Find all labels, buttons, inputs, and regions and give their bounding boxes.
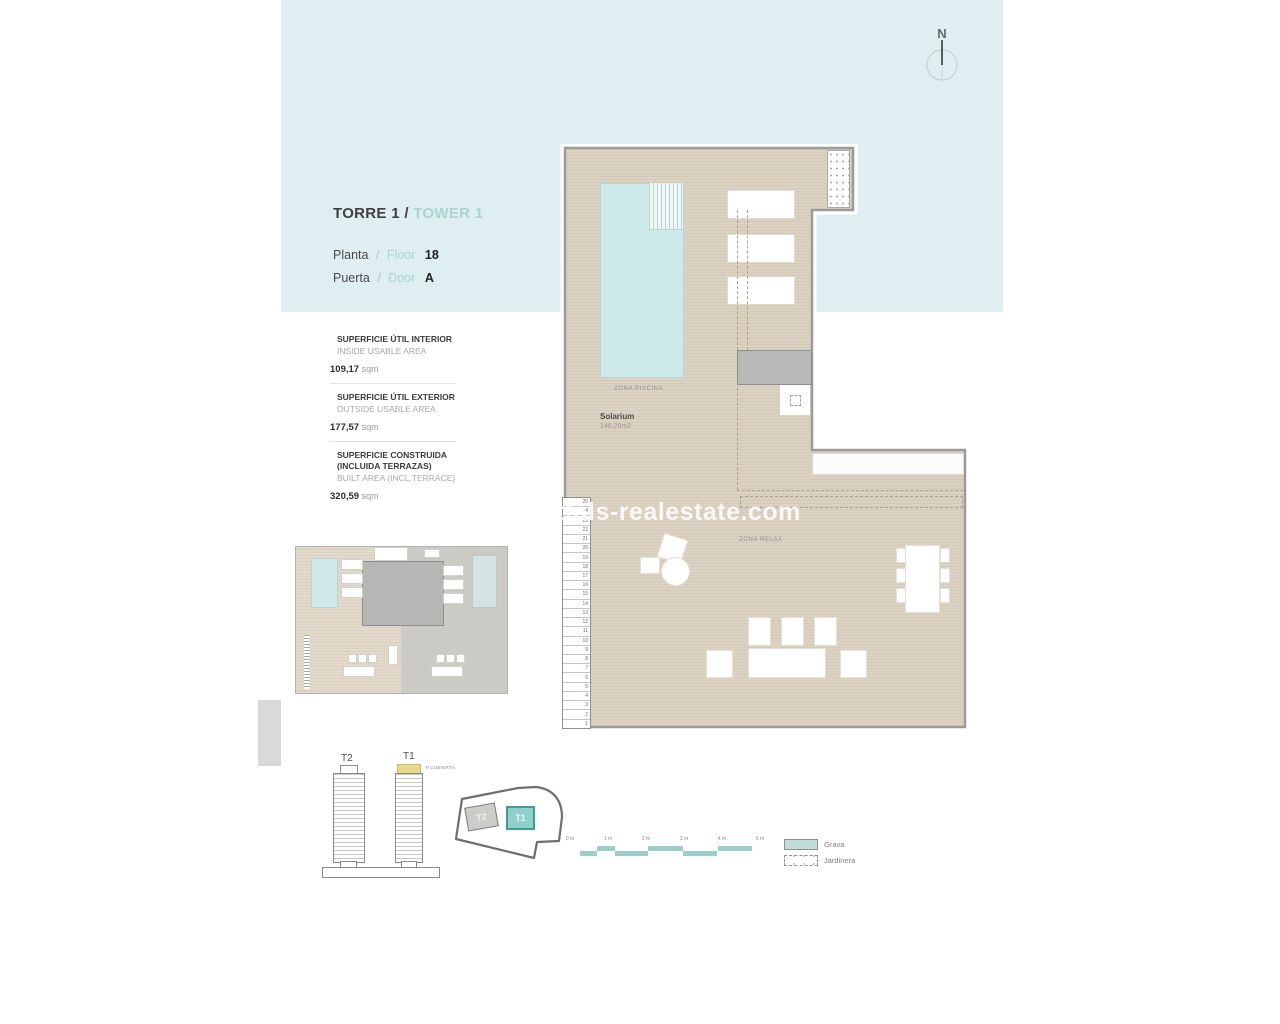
towers-podium bbox=[322, 867, 440, 878]
planter-strip-right bbox=[812, 453, 964, 475]
scale-bar: 0 m1 m2 m3 m4 m5 m bbox=[565, 836, 777, 862]
keyplan-notch bbox=[374, 547, 408, 561]
stair-tread: 2 bbox=[563, 710, 590, 719]
projection-line bbox=[747, 210, 748, 350]
scale-segment bbox=[718, 846, 752, 851]
keyplan-sunbed bbox=[341, 587, 363, 598]
stair-tread: 6 bbox=[563, 673, 590, 682]
scale-tick-label: 0 m bbox=[566, 836, 574, 842]
round-table bbox=[661, 557, 690, 586]
slash: / bbox=[373, 271, 384, 285]
area-unit: sqm bbox=[362, 364, 379, 374]
dining-chair bbox=[940, 568, 950, 583]
stair-tread: 16 bbox=[563, 581, 590, 590]
area-number: 177,57 bbox=[330, 422, 359, 433]
stair-tread: 12 bbox=[563, 618, 590, 627]
stair-tread: 13 bbox=[563, 609, 590, 618]
scale-segment bbox=[580, 851, 597, 856]
area-value: 109,17 sqm bbox=[330, 364, 456, 375]
slash: / bbox=[372, 248, 383, 262]
stair-tread: 4 bbox=[563, 692, 590, 701]
keyplan-pool-left bbox=[311, 558, 338, 608]
scale-segment bbox=[597, 846, 615, 851]
solarium-label: Solarium 146,28m2 bbox=[600, 412, 634, 430]
projection-line bbox=[737, 210, 738, 350]
stair-tread: 21 bbox=[563, 535, 590, 544]
legend-row: Grava bbox=[784, 838, 884, 850]
dining-chair bbox=[896, 588, 906, 603]
area-title-es2: (INCLUIDA TERRAZAS) bbox=[330, 461, 456, 472]
site-tower1-marker: T1 bbox=[506, 806, 535, 830]
keyplan-chair bbox=[446, 654, 455, 663]
stair-tread: 3 bbox=[563, 701, 590, 710]
dining-table bbox=[905, 545, 940, 613]
stair-tread: 19 bbox=[563, 553, 590, 562]
armchair bbox=[814, 617, 837, 646]
door-value: A bbox=[419, 271, 434, 285]
area-item-built: SUPERFICIE CONSTRUIDA (INCLUIDA TERRAZAS… bbox=[330, 450, 456, 502]
tower2-label: T2 bbox=[341, 753, 353, 764]
keyplan-chair bbox=[348, 654, 357, 663]
scale-tick-label: 2 m bbox=[642, 836, 650, 842]
stair-tread: 5 bbox=[563, 683, 590, 692]
floor-value: 18 bbox=[419, 248, 439, 262]
door-label-es: Puerta bbox=[333, 271, 370, 285]
tower1-label: T1 bbox=[403, 751, 415, 762]
solarium-area: 146,28m2 bbox=[600, 423, 634, 430]
roof-level-label: P.CUBIERTA bbox=[426, 765, 455, 770]
legend: GravaJardinera bbox=[784, 838, 884, 870]
scale-segment bbox=[648, 846, 683, 851]
relax-zone-label: ZONA RELAX bbox=[739, 537, 783, 543]
stair-tread: 10 bbox=[563, 637, 590, 646]
keyplan-pool-right bbox=[472, 555, 497, 608]
area-unit: sqm bbox=[362, 422, 379, 432]
keyplan-tab bbox=[424, 549, 440, 558]
area-title-es: SUPERFICIE ÚTIL EXTERIOR bbox=[330, 392, 456, 403]
title-separator: / bbox=[404, 205, 408, 222]
keyplan-sunbed bbox=[443, 565, 464, 576]
door-label-en: Door bbox=[388, 271, 415, 285]
stair-tread: 20 bbox=[563, 544, 590, 553]
area-value: 320,59 sqm bbox=[330, 491, 456, 502]
tower1-elevation bbox=[395, 773, 423, 863]
keyplan-sofa bbox=[431, 666, 463, 677]
gravel-swatch bbox=[784, 839, 818, 850]
keyplan-stairs bbox=[304, 635, 310, 689]
stair-tread: 14 bbox=[563, 600, 590, 609]
scale-tick-label: 4 m bbox=[718, 836, 726, 842]
area-unit: sqm bbox=[362, 491, 379, 501]
scale-tick-label: 1 m bbox=[604, 836, 612, 842]
area-number: 109,17 bbox=[330, 364, 359, 375]
area-title-es: SUPERFICIE ÚTIL INTERIOR bbox=[330, 334, 456, 345]
area-title-en: INSIDE USABLE AREA bbox=[330, 346, 456, 357]
page-edge-artifact bbox=[258, 700, 281, 766]
north-arrow: N bbox=[924, 26, 960, 84]
projection-line bbox=[737, 490, 963, 491]
watermark: ttals-realestate.com bbox=[556, 498, 801, 527]
legend-row: Jardinera bbox=[784, 854, 884, 866]
pool-zone-label: ZONA PISCINA bbox=[614, 386, 663, 392]
stair-tread: 7 bbox=[563, 664, 590, 673]
stair-core-block bbox=[737, 350, 812, 385]
page-title: TORRE 1 / TOWER 1 bbox=[333, 205, 553, 222]
door-row: Puerta / Door A bbox=[333, 271, 553, 285]
area-title-en: BUILT AREA (INCL.TERRACE) bbox=[330, 473, 456, 484]
stair-tread: 8 bbox=[563, 655, 590, 664]
side-table bbox=[840, 650, 867, 678]
side-table bbox=[640, 557, 660, 574]
surface-areas-block: SUPERFICIE ÚTIL INTERIOR INSIDE USABLE A… bbox=[330, 334, 456, 502]
keyplan-chair bbox=[456, 654, 465, 663]
pool-steps bbox=[649, 183, 683, 230]
dining-chair bbox=[896, 568, 906, 583]
divider bbox=[330, 383, 456, 384]
sofa bbox=[748, 648, 826, 678]
scale-tick-label: 5 m bbox=[756, 836, 764, 842]
compass-icon bbox=[924, 38, 960, 84]
keyplan-bar bbox=[388, 645, 398, 665]
keyplan-sunbed bbox=[341, 559, 363, 570]
keyplan-core bbox=[362, 561, 444, 626]
keyplan-chair bbox=[358, 654, 367, 663]
legend-label: Grava bbox=[824, 840, 844, 849]
staircase: 2524232221201918171615141312111098765432… bbox=[562, 497, 591, 729]
scale-segment bbox=[615, 851, 648, 856]
site-key: T2 T1 bbox=[450, 783, 572, 869]
armchair bbox=[781, 617, 804, 646]
stair-tread: 9 bbox=[563, 646, 590, 655]
stair-tread: 1 bbox=[563, 720, 590, 728]
armchair bbox=[748, 617, 771, 646]
area-item-interior: SUPERFICIE ÚTIL INTERIOR INSIDE USABLE A… bbox=[330, 334, 456, 375]
floor-row: Planta / Floor 18 bbox=[333, 248, 553, 262]
legend-label: Jardinera bbox=[824, 856, 855, 865]
area-title-en: OUTSIDE USABLE AREA bbox=[330, 404, 456, 415]
scale-segment bbox=[683, 851, 717, 856]
area-title-es: SUPERFICIE CONSTRUIDA bbox=[330, 450, 456, 461]
stair-tread: 17 bbox=[563, 572, 590, 581]
area-item-exterior: SUPERFICIE ÚTIL EXTERIOR OUTSIDE USABLE … bbox=[330, 392, 456, 433]
solarium-title: Solarium bbox=[600, 412, 634, 421]
tower-title-en: TOWER 1 bbox=[413, 205, 483, 222]
utility-box bbox=[780, 385, 810, 415]
shower-icon bbox=[790, 395, 801, 406]
tower-title-es: TORRE 1 bbox=[333, 205, 400, 222]
floor-label-es: Planta bbox=[333, 248, 368, 262]
keyplan-chair bbox=[436, 654, 445, 663]
keyplan-sunbed bbox=[443, 593, 464, 604]
brochure-page: TORRE 1 / TOWER 1 Planta / Floor 18 Puer… bbox=[0, 0, 1280, 1024]
dining-chair bbox=[940, 548, 950, 563]
side-table bbox=[706, 650, 733, 678]
stair-tread: 22 bbox=[563, 526, 590, 535]
projection-line bbox=[737, 383, 738, 490]
divider bbox=[330, 441, 456, 442]
keyplan-chair bbox=[368, 654, 377, 663]
floor-label-en: Floor bbox=[387, 248, 415, 262]
area-number: 320,59 bbox=[330, 491, 359, 502]
keyplan-sunbed bbox=[341, 573, 363, 584]
planter-jardinera bbox=[827, 150, 850, 208]
tower2-elevation bbox=[333, 773, 365, 863]
dining-chair bbox=[940, 588, 950, 603]
stair-tread: 11 bbox=[563, 627, 590, 636]
key-plan bbox=[295, 546, 508, 694]
planter-swatch bbox=[784, 855, 818, 866]
stair-tread: 15 bbox=[563, 590, 590, 599]
keyplan-sofa bbox=[343, 666, 375, 677]
floor-plan: 2524232221201918171615141312111098765432… bbox=[556, 144, 968, 730]
scale-tick-label: 3 m bbox=[680, 836, 688, 842]
stair-tread: 18 bbox=[563, 563, 590, 572]
keyplan-sunbed bbox=[443, 579, 464, 590]
dining-chair bbox=[896, 548, 906, 563]
area-value: 177,57 sqm bbox=[330, 422, 456, 433]
title-block: TORRE 1 / TOWER 1 Planta / Floor 18 Puer… bbox=[333, 205, 553, 285]
